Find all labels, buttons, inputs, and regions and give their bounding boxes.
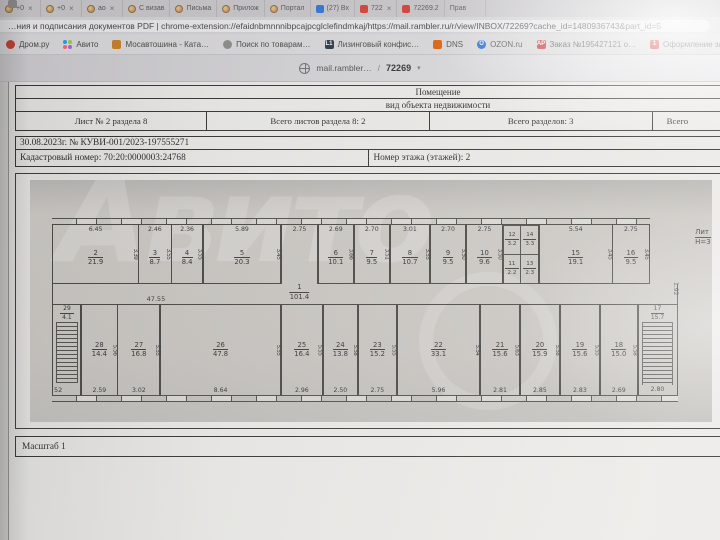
- room-24: 2413.82.505.58: [322, 304, 359, 396]
- room-label: 221.9: [88, 250, 103, 267]
- room-16: 2.75169.53.45: [612, 224, 650, 284]
- bookmark-favicon: [223, 40, 232, 49]
- doc-cadastral-row: Кадастровый номер: 70:20:0000003:24768 Н…: [15, 149, 720, 167]
- depth-dim: 3.45: [643, 249, 649, 260]
- room-label: 2015.9: [532, 342, 547, 359]
- room-4: 2.3648.43.55: [171, 224, 204, 284]
- room-28: 2814.42.595.56: [80, 304, 118, 396]
- pdf-document-area: Помещение вид объекта недвижимости Лист …: [0, 82, 720, 540]
- room-27: 2716.83.025.55: [117, 304, 161, 396]
- room-5: 5.89520.33.45: [202, 224, 282, 284]
- cadastral-number: Кадастровый номер: 70:20:0000003:24768: [16, 150, 369, 166]
- room-26: 2647.88.645.55: [159, 304, 281, 396]
- close-icon[interactable]: ×: [386, 4, 392, 13]
- room-19: 1915.62.835.55: [559, 304, 600, 396]
- browser-tab[interactable]: (27) Вх: [311, 0, 355, 17]
- room-label: 2413.8: [333, 342, 348, 359]
- room-15: 5.541519.13.45: [538, 224, 613, 284]
- room-label: 2233.1: [431, 342, 446, 359]
- browser-tab[interactable]: Письма: [170, 0, 217, 17]
- corridor-label: 1101.4: [290, 284, 309, 301]
- room-8: 3.01810.73.55: [389, 224, 431, 284]
- room-10: 2.75109.63.50: [465, 224, 503, 284]
- room-23: 2315.22.755.55: [357, 304, 397, 396]
- room-label: 169.5: [624, 250, 639, 267]
- room-label: 48.4: [182, 250, 193, 267]
- room-label: 294.1: [60, 306, 74, 321]
- browser-tab[interactable]: С визав: [123, 0, 170, 17]
- bookmark-label: Дром.ру: [19, 40, 49, 49]
- doc-object-type: Помещение: [15, 85, 720, 99]
- pdf-icon: [360, 5, 368, 13]
- rambler-icon: [222, 5, 230, 13]
- top-room-row: 6.45221.93.392.4638.73.552.3648.43.555.8…: [52, 224, 650, 284]
- browser-tab[interactable]: +0×: [0, 0, 41, 17]
- bookmark-item[interactable]: OOZON.ru: [477, 40, 522, 49]
- rambler-icon: [270, 5, 278, 13]
- tab-title: +0: [57, 5, 65, 12]
- room-label: 2516.4: [294, 342, 309, 359]
- floor-number: Номер этажа (этажей): 2: [369, 150, 720, 166]
- room-label: 2814.4: [92, 342, 107, 359]
- chevron-down-icon[interactable]: ▾: [417, 64, 421, 72]
- browser-tab[interactable]: 722×: [355, 0, 397, 17]
- header-cell-sheets-total: Всего листов раздела 8: 2: [207, 112, 430, 130]
- room-label: 810.7: [402, 250, 417, 267]
- room-9: 2.7099.53.50: [429, 224, 467, 284]
- room-22: 2233.15.965.54: [396, 304, 481, 396]
- bookmark-favicon: L1: [325, 40, 334, 49]
- bookmark-label: Авито: [76, 40, 98, 49]
- tab-title: 722: [371, 5, 383, 12]
- tab-title: (27) Вх: [327, 5, 349, 12]
- bookmark-favicon: АР: [537, 40, 546, 49]
- room-label: 109.6: [477, 250, 492, 267]
- room-label: 1519.1: [568, 250, 583, 267]
- pdf-source-site[interactable]: mail.rambler…: [316, 63, 371, 73]
- corridor-length-dim: 47.55: [147, 295, 166, 303]
- scale-note: Масштаб 1: [15, 436, 720, 457]
- pdf-icon: [402, 5, 410, 13]
- room-6: 2.69610.13.66: [317, 224, 355, 284]
- room-20: 2015.92.855.58: [519, 304, 561, 396]
- floor-plan-drawing: 6.45221.93.392.4638.73.552.3648.43.555.8…: [52, 224, 680, 410]
- stairs-icon: [642, 322, 672, 385]
- tab-title: Прилож: [233, 5, 259, 12]
- bookmark-item[interactable]: Мосавтошина - Ката…: [112, 40, 209, 49]
- tab-title: Письма: [186, 5, 211, 12]
- doc-date-number-line: 30.08.2023г. № КУВИ-001/2023-197555271: [15, 136, 720, 150]
- rambler-icon: [175, 5, 183, 13]
- rambler-icon: [128, 5, 136, 13]
- browser-tab-bar: +0×+0×ао×С визавПисьмаПриложПортал(27) В…: [0, 0, 720, 17]
- room-label: 79.5: [366, 250, 377, 267]
- bookmarks-bar: Дром.руАвитоМосавтошина - Ката…Поиск по …: [0, 34, 720, 55]
- room-3: 2.4638.73.55: [138, 224, 173, 284]
- floor-plan-scan: Авито Лит Н=3 6.45221.93.392.4638.73.552…: [30, 180, 712, 422]
- bottom-room-row: 294.1522814.42.595.562716.83.025.552647.…: [52, 304, 678, 396]
- bookmark-item[interactable]: 1Оформление заказа…: [650, 40, 720, 49]
- bookmark-label: Лизинговый конфис…: [338, 40, 420, 49]
- browser-tab[interactable]: 72269.2: [397, 0, 444, 17]
- browser-address-bar: …ния и подписания документов PDF | chrom…: [0, 17, 720, 34]
- bookmark-item[interactable]: АРЗаказ №195427121 о…: [537, 40, 637, 49]
- room-label: 2115.6: [492, 342, 507, 359]
- room-label: 1815.0: [611, 342, 626, 359]
- rambler-icon: [87, 5, 95, 13]
- room-label: 143.3: [520, 225, 539, 255]
- room-25: 2516.42.965.55: [280, 304, 323, 396]
- tab-title: Портал: [281, 5, 305, 12]
- room-label: 1715.7: [651, 306, 665, 321]
- corridor-opening: 2.751101.4: [280, 224, 318, 284]
- room-7: 2.7079.53.51: [353, 224, 391, 284]
- pdf-viewer-toolbar: mail.rambler… / 72269 ▾: [0, 55, 720, 82]
- passage-dim: 1.92: [672, 282, 679, 295]
- room-label: 112.2: [503, 254, 522, 284]
- tab-title: +0: [16, 5, 24, 12]
- egrn-extract-sheet: Помещение вид объекта недвижимости Лист …: [8, 82, 720, 540]
- corridor: 47.55: [52, 284, 678, 304]
- bookmark-item[interactable]: Поиск по товарам…: [223, 40, 310, 49]
- doc-header-table: Лист № 2 раздела 8 Всего листов раздела …: [15, 111, 720, 131]
- bookmark-item[interactable]: Авито: [63, 40, 98, 49]
- close-icon[interactable]: ×: [27, 4, 33, 13]
- room-label: 1101.4: [290, 284, 309, 301]
- room-label: 610.1: [328, 250, 343, 267]
- room-label: 99.5: [443, 250, 454, 267]
- pdf-document-id[interactable]: 72269: [386, 63, 411, 73]
- wc-block: 123.2143.3112.2132.3: [502, 224, 540, 284]
- liter-annotation: Лит Н=3: [695, 228, 711, 247]
- room-label: 1915.6: [572, 342, 587, 359]
- browser-tab[interactable]: +0×: [41, 0, 82, 17]
- room-label: 38.7: [149, 250, 160, 267]
- header-cell-sections-total: Всего разделов: 3: [430, 112, 653, 130]
- room-label: 123.2: [503, 225, 522, 255]
- header-cell-total: Всего: [653, 112, 720, 130]
- room-label: 2716.8: [131, 342, 146, 359]
- bookmark-favicon: 1: [650, 40, 659, 49]
- path-separator: /: [378, 63, 380, 73]
- bookmark-label: Мосавтошина - Ката…: [125, 40, 209, 49]
- bookmark-item[interactable]: L1Лизинговый конфис…: [325, 40, 420, 49]
- stairwell-right: 1.921715.72.80: [637, 304, 678, 396]
- globe-icon: [299, 63, 310, 74]
- close-icon[interactable]: ×: [68, 4, 74, 13]
- header-cell-sheet: Лист № 2 раздела 8: [16, 112, 207, 130]
- room-label: 520.3: [234, 250, 249, 267]
- bookmark-label: OZON.ru: [490, 40, 522, 49]
- bookmark-label: Оформление заказа…: [663, 40, 720, 49]
- floor-plan-frame: Авито Лит Н=3 6.45221.93.392.4638.73.552…: [15, 173, 720, 429]
- bookmark-favicon: [6, 40, 15, 49]
- browser-tab[interactable]: Портал: [265, 0, 311, 17]
- bookmark-label: Заказ №195427121 о…: [550, 40, 637, 49]
- bookmark-favicon: [433, 40, 442, 49]
- bookmark-favicon: [112, 40, 121, 49]
- room-18: 1815.02.695.58: [599, 304, 639, 396]
- stairs-icon: [56, 322, 78, 383]
- rambler-icon: [46, 5, 54, 13]
- photographed-browser-screen: +0×+0×ао×С визавПисьмаПриложПортал(27) В…: [0, 0, 720, 540]
- tab-title: 72269.2: [413, 5, 438, 12]
- bookmark-item[interactable]: DNS: [433, 40, 463, 49]
- stair-number: 52: [54, 386, 62, 394]
- avito-icon: [63, 40, 72, 49]
- bookmark-item[interactable]: Дром.ру: [6, 40, 49, 49]
- close-icon[interactable]: ×: [109, 4, 115, 13]
- room-label: 2647.8: [213, 342, 228, 359]
- bookmark-label: DNS: [446, 40, 463, 49]
- room-2: 6.45221.93.39: [52, 224, 139, 284]
- tab-title: С визав: [139, 5, 164, 12]
- stairwell-left: 294.152: [52, 304, 82, 396]
- browser-tab[interactable]: Прав: [445, 0, 486, 17]
- tab-title: Прав: [450, 5, 467, 12]
- doc-object-type-caption: вид объекта недвижимости: [15, 98, 720, 112]
- bookmark-label: Поиск по товарам…: [236, 40, 310, 49]
- mail-icon: [316, 5, 324, 13]
- url-omnibox[interactable]: …ния и подписания документов PDF | chrom…: [0, 20, 710, 32]
- bookmark-favicon: O: [477, 40, 486, 49]
- room-label: 132.3: [520, 254, 539, 284]
- browser-tab[interactable]: Прилож: [217, 0, 265, 17]
- room-label: 2315.2: [370, 342, 385, 359]
- tab-title: ао: [98, 5, 106, 12]
- browser-tab[interactable]: ао×: [82, 0, 123, 17]
- room-21: 2115.62.815.63: [479, 304, 520, 396]
